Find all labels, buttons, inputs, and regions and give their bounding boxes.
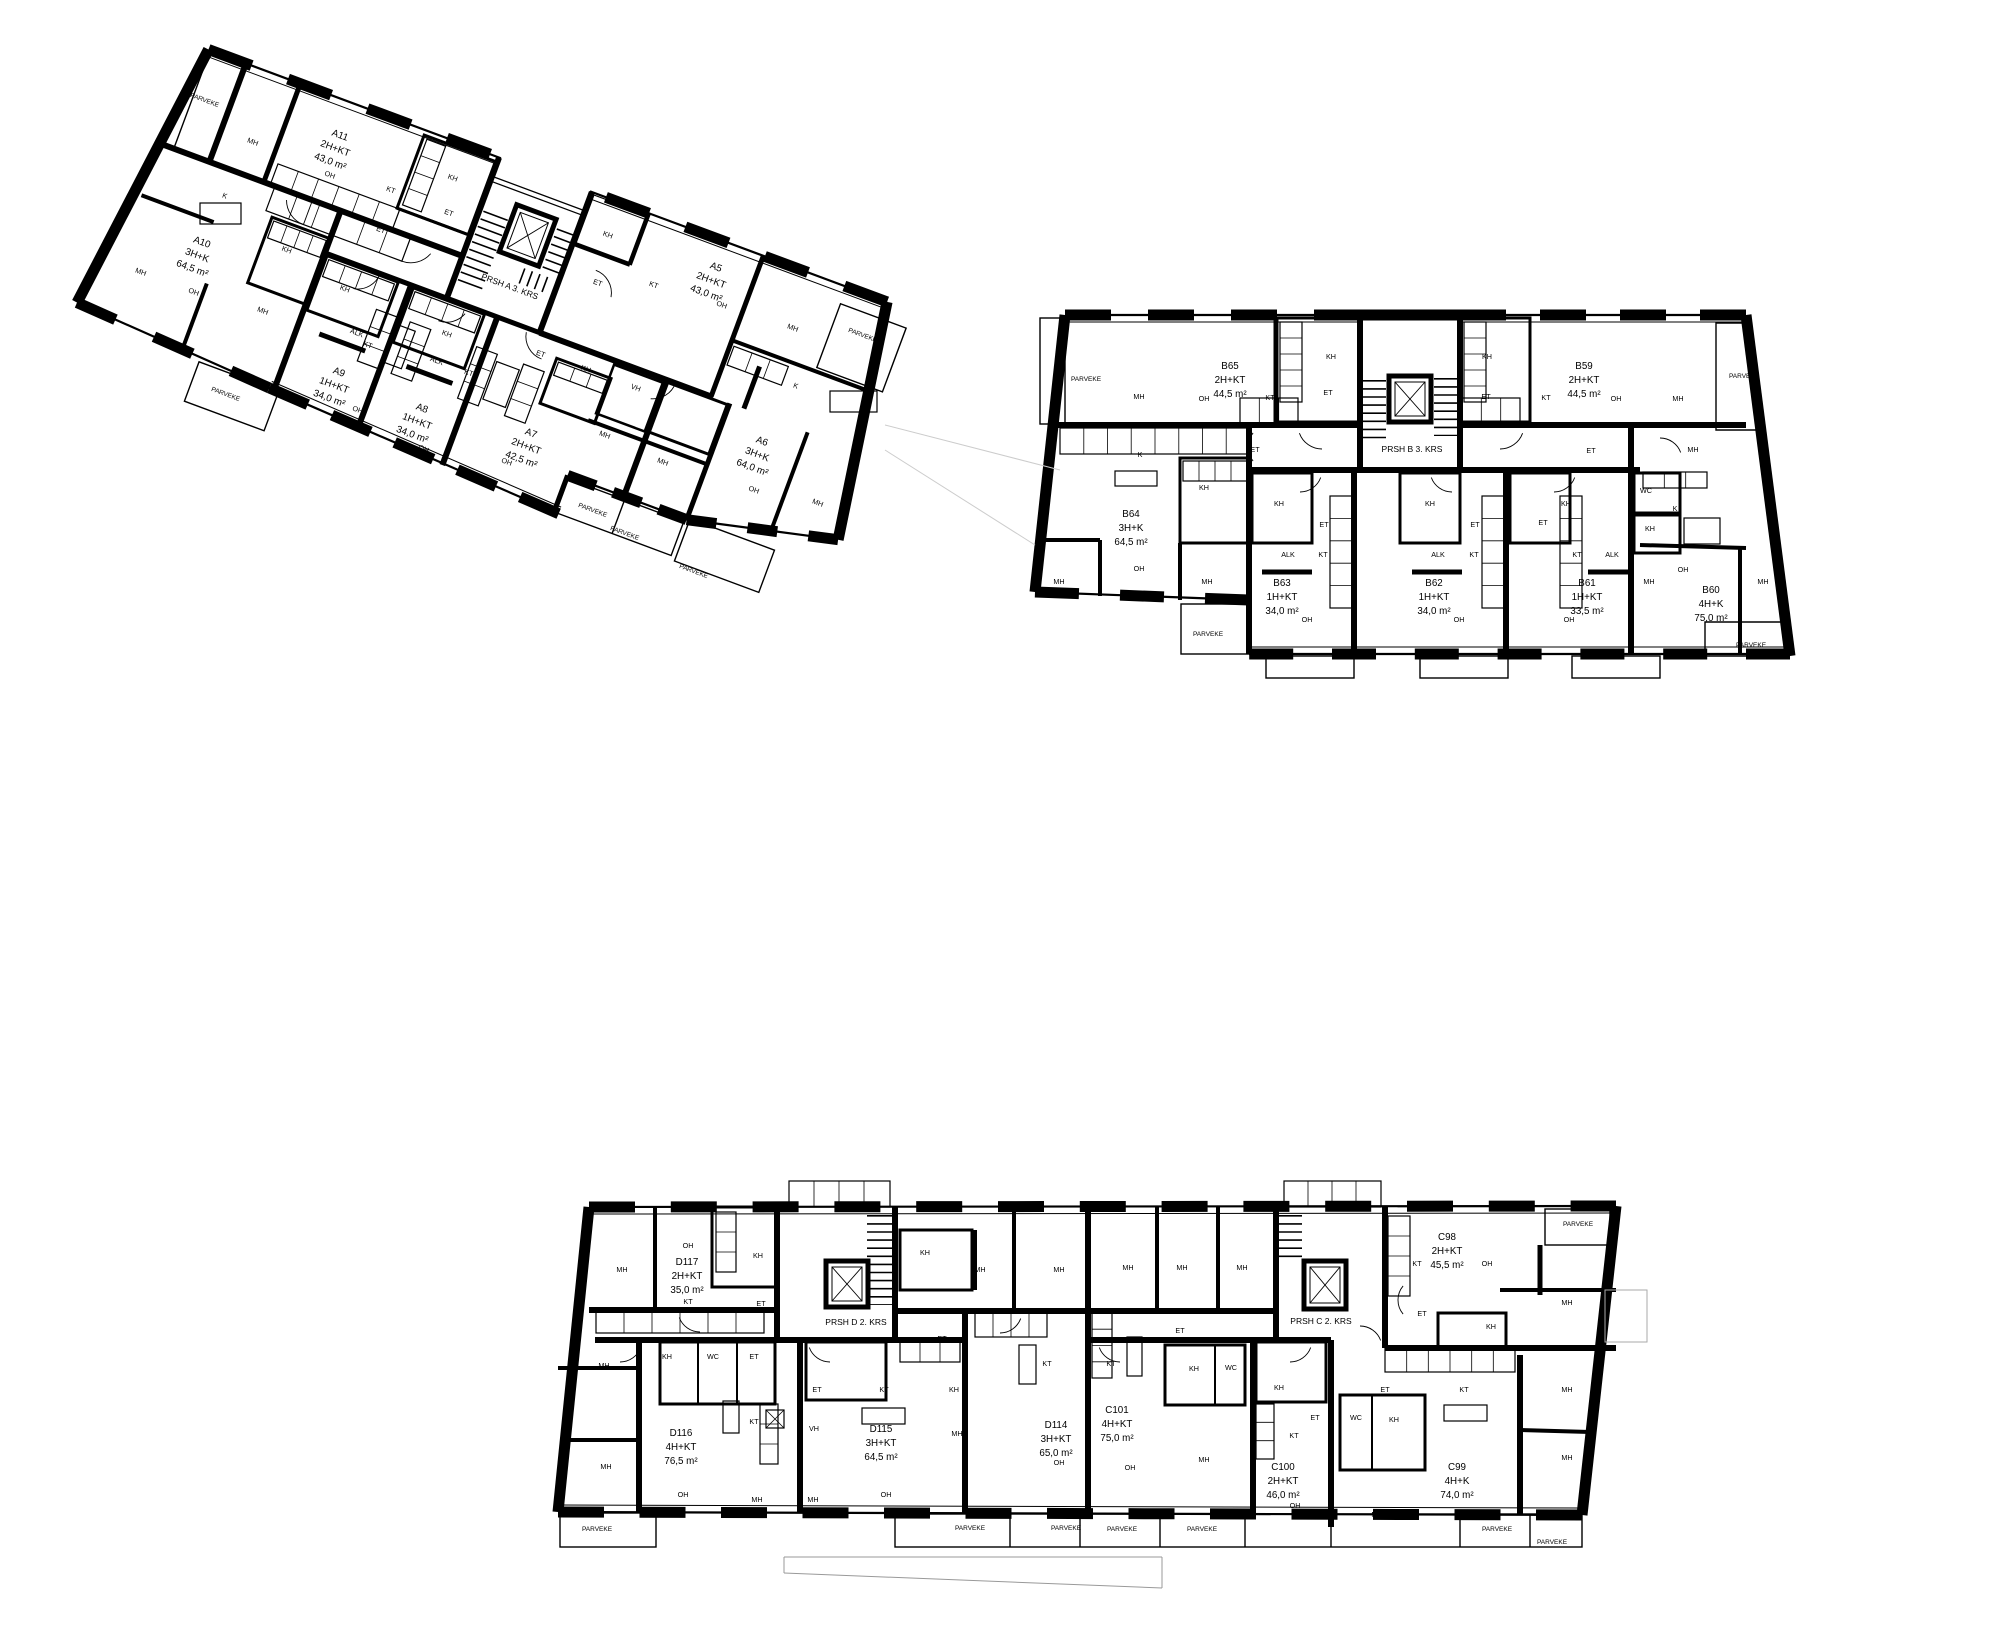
- svg-text:KH: KH: [1645, 524, 1655, 533]
- svg-text:WC: WC: [1640, 486, 1652, 495]
- svg-text:PARVEKE: PARVEKE: [1482, 1526, 1513, 1533]
- svg-text:MH: MH: [1757, 577, 1768, 586]
- svg-text:MH: MH: [1561, 1385, 1572, 1394]
- svg-text:2H+KT: 2H+KT: [672, 1271, 703, 1282]
- svg-text:KT: KT: [1469, 550, 1479, 559]
- svg-text:ET: ET: [1323, 388, 1333, 397]
- svg-text:ET: ET: [812, 1385, 822, 1394]
- svg-text:PARVEKE: PARVEKE: [1563, 1221, 1594, 1228]
- svg-text:WC: WC: [707, 1352, 719, 1361]
- svg-text:D116: D116: [670, 1428, 693, 1439]
- svg-text:ET: ET: [1417, 1309, 1427, 1318]
- svg-text:MH: MH: [598, 1361, 609, 1370]
- svg-text:OH: OH: [1482, 1259, 1493, 1268]
- svg-text:C98: C98: [1438, 1232, 1457, 1243]
- svg-text:KT: KT: [1541, 393, 1551, 402]
- svg-text:K: K: [1673, 504, 1678, 513]
- svg-text:D114: D114: [1045, 1420, 1068, 1431]
- svg-text:MH: MH: [1176, 1263, 1187, 1272]
- svg-text:44,5 m²: 44,5 m²: [1213, 389, 1247, 400]
- svg-text:OH: OH: [1456, 1512, 1467, 1521]
- svg-text:PARVEKE: PARVEKE: [1107, 1526, 1138, 1533]
- svg-text:MH: MH: [1687, 445, 1698, 454]
- svg-text:PARVEKE: PARVEKE: [582, 1526, 613, 1533]
- svg-text:MH: MH: [1672, 394, 1683, 403]
- svg-text:64,5 m²: 64,5 m²: [864, 1452, 898, 1463]
- svg-text:KH: KH: [1189, 1364, 1199, 1373]
- svg-text:46,0 m²: 46,0 m²: [1266, 1490, 1300, 1501]
- svg-text:45,5 m²: 45,5 m²: [1430, 1260, 1464, 1271]
- svg-text:ET: ET: [1481, 392, 1491, 401]
- svg-text:MH: MH: [1133, 392, 1144, 401]
- svg-text:ET: ET: [1250, 445, 1260, 454]
- svg-text:75,0 m²: 75,0 m²: [1694, 613, 1728, 624]
- svg-text:3H+KT: 3H+KT: [866, 1438, 897, 1449]
- svg-text:WC: WC: [1350, 1413, 1362, 1422]
- svg-text:MH: MH: [974, 1265, 985, 1274]
- svg-text:64,5 m²: 64,5 m²: [1114, 537, 1148, 548]
- svg-text:KH: KH: [920, 1248, 930, 1257]
- svg-text:MH: MH: [1643, 577, 1654, 586]
- svg-text:3H+K: 3H+K: [1119, 523, 1144, 534]
- svg-text:OH: OH: [1678, 565, 1689, 574]
- svg-text:33,5 m²: 33,5 m²: [1570, 606, 1604, 617]
- svg-text:KH: KH: [753, 1251, 763, 1260]
- svg-text:KT: KT: [1318, 550, 1328, 559]
- svg-text:KT: KT: [879, 1385, 889, 1394]
- svg-text:ET: ET: [1319, 520, 1329, 529]
- svg-text:ET: ET: [1586, 446, 1596, 455]
- svg-text:4H+KT: 4H+KT: [666, 1442, 697, 1453]
- svg-text:B61: B61: [1578, 578, 1595, 589]
- svg-text:ALK: ALK: [1605, 550, 1619, 559]
- svg-text:OH: OH: [1199, 394, 1210, 403]
- svg-text:KH: KH: [662, 1352, 672, 1361]
- svg-text:MH: MH: [1122, 1263, 1133, 1272]
- svg-text:D117: D117: [676, 1257, 699, 1268]
- svg-text:K: K: [1138, 450, 1143, 459]
- svg-text:MH: MH: [1198, 1455, 1209, 1464]
- svg-text:MH: MH: [600, 1462, 611, 1471]
- svg-text:OH: OH: [1134, 564, 1145, 573]
- svg-text:MH: MH: [1053, 577, 1064, 586]
- svg-text:OH: OH: [1454, 615, 1465, 624]
- svg-text:WC: WC: [1225, 1363, 1237, 1372]
- svg-text:KT: KT: [1042, 1359, 1052, 1368]
- svg-text:KH: KH: [1482, 352, 1492, 361]
- svg-text:OH: OH: [1302, 615, 1313, 624]
- svg-text:B63: B63: [1273, 578, 1291, 589]
- svg-text:2H+KT: 2H+KT: [1215, 375, 1246, 386]
- svg-text:2H+KT: 2H+KT: [1432, 1246, 1463, 1257]
- svg-text:KT: KT: [683, 1297, 693, 1306]
- svg-text:OH: OH: [1125, 1463, 1136, 1472]
- svg-text:MH: MH: [807, 1495, 818, 1504]
- svg-text:KT: KT: [749, 1417, 759, 1426]
- svg-text:ET: ET: [749, 1352, 759, 1361]
- svg-text:OH: OH: [1611, 394, 1622, 403]
- svg-text:MH: MH: [1561, 1453, 1572, 1462]
- svg-text:1H+KT: 1H+KT: [1419, 592, 1450, 603]
- svg-text:35,0 m²: 35,0 m²: [670, 1285, 704, 1296]
- svg-text:KH: KH: [1274, 1383, 1284, 1392]
- svg-text:ET: ET: [1380, 1385, 1390, 1394]
- svg-text:MH: MH: [751, 1495, 762, 1504]
- svg-text:KH: KH: [1561, 499, 1571, 508]
- svg-text:KH: KH: [1486, 1322, 1496, 1331]
- svg-text:3H+KT: 3H+KT: [1041, 1434, 1072, 1445]
- svg-text:KH: KH: [949, 1385, 959, 1394]
- svg-text:44,5 m²: 44,5 m²: [1567, 389, 1601, 400]
- svg-text:ET: ET: [1310, 1413, 1320, 1422]
- svg-text:PARVEKE: PARVEKE: [1187, 1526, 1218, 1533]
- svg-text:75,0 m²: 75,0 m²: [1100, 1433, 1134, 1444]
- svg-text:ET: ET: [1538, 518, 1548, 527]
- svg-text:B62: B62: [1425, 578, 1442, 589]
- svg-text:MH: MH: [1561, 1298, 1572, 1307]
- svg-text:ET: ET: [937, 1334, 947, 1343]
- svg-text:OH: OH: [678, 1490, 689, 1499]
- svg-text:OH: OH: [1564, 615, 1575, 624]
- svg-text:ET: ET: [1470, 520, 1480, 529]
- svg-text:KH: KH: [1326, 352, 1336, 361]
- svg-text:VH: VH: [809, 1424, 819, 1433]
- svg-text:MH: MH: [1201, 577, 1212, 586]
- svg-text:PARVEKE: PARVEKE: [955, 1525, 986, 1532]
- svg-text:4H+KT: 4H+KT: [1102, 1419, 1133, 1430]
- svg-text:PARVEKE: PARVEKE: [1537, 1539, 1568, 1546]
- svg-text:PARVEKE: PARVEKE: [1736, 642, 1767, 649]
- svg-text:1H+KT: 1H+KT: [1267, 592, 1298, 603]
- svg-text:C100: C100: [1271, 1462, 1295, 1473]
- svg-text:B64: B64: [1122, 509, 1140, 520]
- svg-text:MH: MH: [951, 1429, 962, 1438]
- svg-text:MH: MH: [1236, 1263, 1247, 1272]
- svg-text:OH: OH: [881, 1490, 892, 1499]
- svg-text:76,5 m²: 76,5 m²: [664, 1456, 698, 1467]
- svg-text:KT: KT: [1459, 1385, 1469, 1394]
- svg-text:PARVEKE: PARVEKE: [1729, 373, 1760, 380]
- svg-text:KH: KH: [1389, 1415, 1399, 1424]
- svg-text:ALK: ALK: [1431, 550, 1445, 559]
- svg-text:MH: MH: [1053, 1265, 1064, 1274]
- svg-text:B60: B60: [1702, 585, 1720, 596]
- svg-text:C99: C99: [1448, 1462, 1466, 1473]
- svg-text:D115: D115: [870, 1424, 893, 1435]
- svg-text:PRSH B 3. KRS: PRSH B 3. KRS: [1382, 444, 1443, 454]
- svg-text:ALK: ALK: [1281, 550, 1295, 559]
- svg-text:1H+KT: 1H+KT: [1572, 592, 1603, 603]
- svg-text:4H+K: 4H+K: [1445, 1476, 1470, 1487]
- svg-text:PARVEKE: PARVEKE: [1193, 631, 1224, 638]
- svg-text:PARVEKE: PARVEKE: [1051, 1525, 1082, 1532]
- svg-text:4H+K: 4H+K: [1699, 599, 1724, 610]
- svg-text:KT: KT: [1265, 393, 1275, 402]
- svg-text:KH: KH: [1425, 499, 1435, 508]
- svg-text:ET: ET: [756, 1299, 766, 1308]
- svg-text:KH: KH: [1199, 483, 1209, 492]
- svg-text:B65: B65: [1221, 361, 1239, 372]
- svg-text:74,0 m²: 74,0 m²: [1440, 1490, 1474, 1501]
- svg-text:PRSH C 2. KRS: PRSH C 2. KRS: [1290, 1316, 1352, 1326]
- svg-text:2H+KT: 2H+KT: [1569, 375, 1600, 386]
- svg-text:C101: C101: [1105, 1405, 1128, 1416]
- svg-text:OH: OH: [1054, 1458, 1065, 1467]
- svg-text:ET: ET: [1175, 1326, 1185, 1335]
- svg-text:KH: KH: [1274, 499, 1284, 508]
- svg-text:KT: KT: [1289, 1431, 1299, 1440]
- svg-text:KT: KT: [1106, 1359, 1116, 1368]
- svg-text:34,0 m²: 34,0 m²: [1265, 606, 1299, 617]
- svg-text:KT: KT: [1412, 1259, 1422, 1268]
- svg-text:PRSH D 2. KRS: PRSH D 2. KRS: [825, 1317, 887, 1327]
- svg-text:OH: OH: [683, 1241, 694, 1250]
- svg-text:2H+KT: 2H+KT: [1268, 1476, 1299, 1487]
- svg-text:34,0 m²: 34,0 m²: [1417, 606, 1451, 617]
- svg-text:KT: KT: [1572, 550, 1582, 559]
- svg-text:PARVEKE: PARVEKE: [1071, 376, 1102, 383]
- svg-text:OH: OH: [1290, 1501, 1301, 1510]
- svg-text:MH: MH: [616, 1265, 627, 1274]
- svg-text:MH: MH: [1371, 1510, 1382, 1519]
- svg-text:B59: B59: [1575, 361, 1592, 372]
